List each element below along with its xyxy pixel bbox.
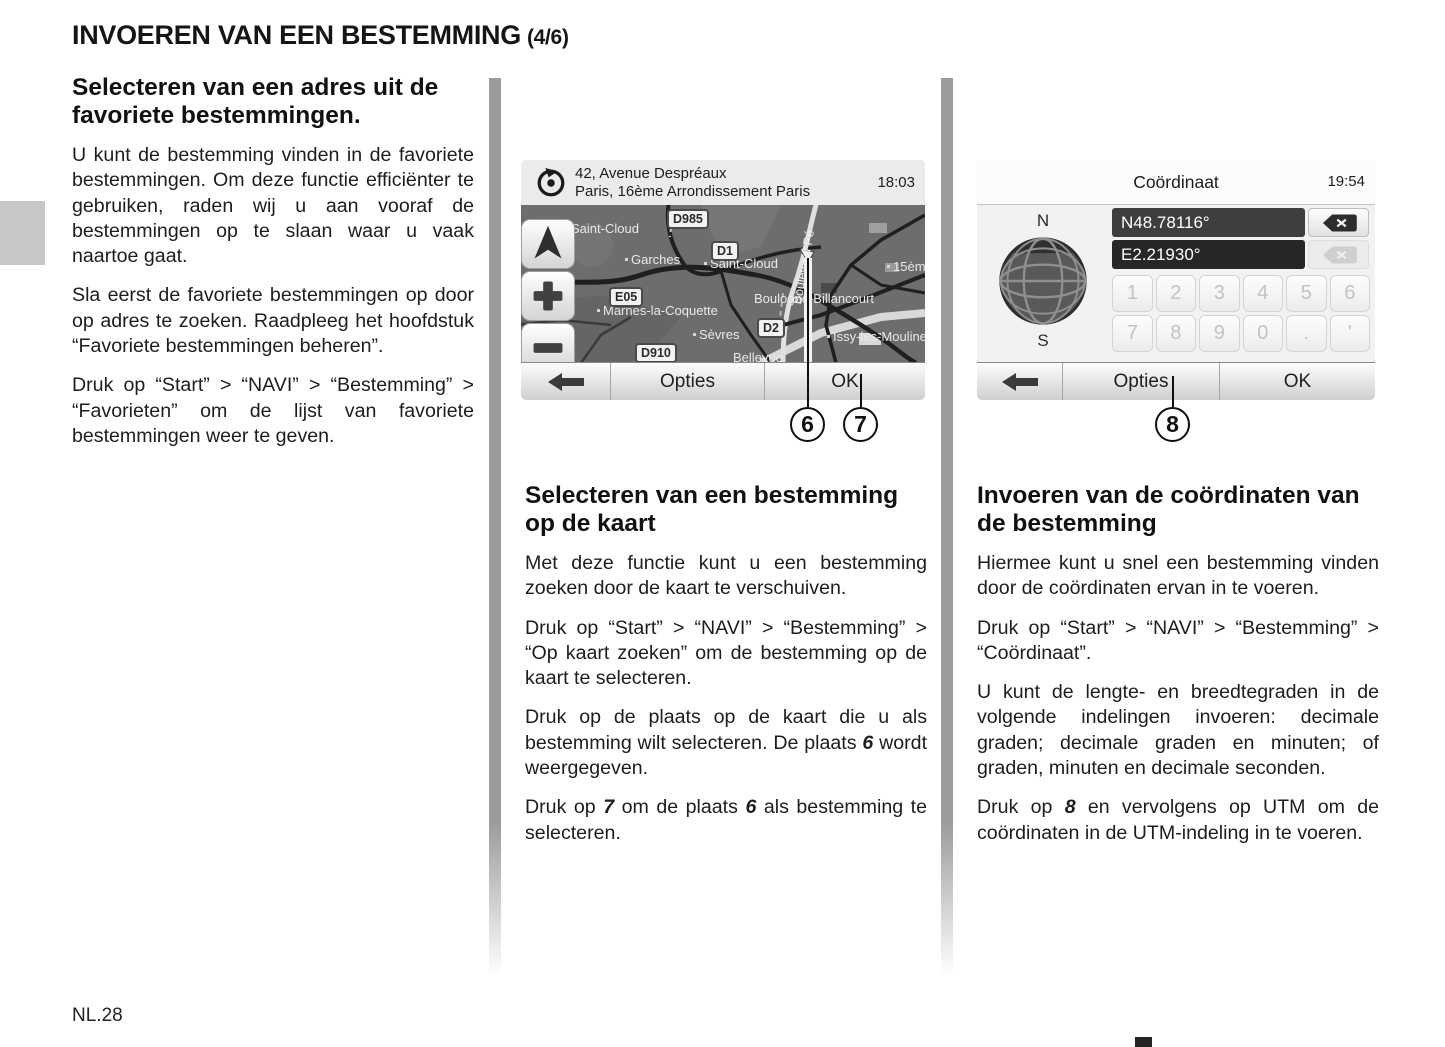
address-line2: Paris, 16ème Arrondissement Paris [575, 183, 877, 201]
key-9[interactable]: 9 [1199, 315, 1240, 352]
column-divider [941, 78, 953, 985]
south-label: S [977, 331, 1109, 351]
longitude-value: E2.21930° [1121, 245, 1201, 264]
key-4[interactable]: 4 [1243, 275, 1284, 312]
paragraph-text: Druk op [525, 796, 603, 818]
left-column-heading: Selecteren van een adres uit de favoriet… [72, 74, 474, 130]
key-3[interactable]: 3 [1199, 275, 1240, 312]
key-0[interactable]: 0 [1243, 315, 1284, 352]
page-title-suffix: (4/6) [527, 26, 569, 49]
paragraph-text: Druk op [977, 796, 1065, 818]
page-corner-mark [1135, 1037, 1152, 1047]
paragraph: Met deze functie kunt u een bestemming z… [525, 551, 927, 602]
map-controls [521, 219, 575, 363]
map-canvas[interactable]: Saint-Cloud Garches Saint-Cloud Marnes-l… [521, 205, 925, 363]
destination-address: 42, Avenue Despréaux Paris, 16ème Arrond… [575, 165, 877, 201]
left-column: Selecteren van een adres uit de favoriet… [72, 74, 474, 463]
road-shield: D2 [757, 318, 785, 338]
paragraph: Druk op “Start” > “NAVI” > “Bestemming” … [977, 616, 1379, 667]
key-7[interactable]: 7 [1112, 315, 1153, 352]
key-2[interactable]: 2 [1156, 275, 1197, 312]
coord-footer-bar: Opties OK [977, 362, 1375, 400]
options-button-label: Opties [660, 371, 715, 393]
options-button-label: Opties [1114, 371, 1169, 393]
back-button[interactable] [977, 363, 1063, 400]
callout-reference: 6 [862, 732, 873, 754]
map-place-label: 15èm [887, 259, 925, 274]
recent-destination-icon [535, 167, 567, 199]
map-compass-button[interactable] [521, 219, 575, 269]
coord-body: N S N48.78116° [977, 205, 1375, 362]
north-label: N [977, 211, 1109, 231]
coordinate-screenshot: Coördinaat 19:54 N S N48.78116° [977, 160, 1375, 400]
road-shield: E05 [609, 287, 643, 307]
callout-6: 6 [790, 407, 825, 442]
map-place-label: Issy-les-Moulinea [827, 329, 925, 344]
callout-reference: 7 [603, 796, 614, 818]
column-divider [489, 78, 501, 985]
paragraph-text: om de plaats [614, 796, 745, 818]
latitude-field[interactable]: N48.78116° [1112, 208, 1305, 237]
paragraph: U kunt de bestemming vinden in de favori… [72, 143, 474, 269]
map-place-label: Boulogne-Billancourt [754, 291, 874, 306]
callout-line-6 [807, 258, 810, 407]
manual-page: INVOEREN VAN EEN BESTEMMING(4/6) Selecte… [0, 0, 1445, 1047]
zoom-out-button[interactable] [521, 323, 575, 363]
paragraph: Druk op 7 om de plaats 6 als bestemming … [525, 795, 927, 846]
page-number: NL.28 [72, 1005, 123, 1027]
page-title-text: INVOEREN VAN EEN BESTEMMING [72, 20, 521, 50]
screen-title: Coördinaat [977, 172, 1375, 193]
arrow-left-icon [998, 370, 1042, 394]
callout-reference: 6 [745, 796, 756, 818]
address-line1: 42, Avenue Despréaux [575, 165, 877, 183]
road-shield: D910 [635, 343, 677, 363]
paragraph: Druk op “Start” > “NAVI” > “Bestemming” … [72, 373, 474, 449]
keypad-row-2: 7 8 9 0 . ' [1112, 315, 1370, 352]
paragraph: U kunt de lengte- en breedtegraden in de… [977, 680, 1379, 781]
nav-map-screenshot: 42, Avenue Despréaux Paris, 16ème Arrond… [521, 160, 925, 400]
map-place-label: Garches [625, 252, 680, 267]
paragraph: Hiermee kunt u snel een bestemming vinde… [977, 551, 1379, 602]
callout-line-7 [860, 374, 863, 407]
road-shield: D985 [667, 209, 709, 229]
options-button[interactable]: Opties [1063, 363, 1220, 400]
backspace-icon [1319, 212, 1359, 234]
callout-line-8 [1172, 376, 1175, 407]
map-place-label: Saint-Cloud [571, 221, 639, 236]
callout-7: 7 [843, 407, 878, 442]
key-apostrophe[interactable]: ' [1330, 315, 1371, 352]
ok-button-label: OK [1284, 371, 1311, 393]
paragraph: Druk op 8 en vervolgens op UTM om de coö… [977, 795, 1379, 846]
middle-column: Selecteren van een bestemming op de kaar… [525, 482, 927, 860]
coord-clock: 19:54 [1327, 173, 1365, 190]
backspace-button[interactable] [1308, 208, 1369, 237]
longitude-field[interactable]: E2.21930° [1112, 240, 1305, 269]
key-dot[interactable]: . [1286, 315, 1327, 352]
backspace-button-disabled [1308, 240, 1369, 269]
map-footer-bar: Opties OK [521, 362, 925, 400]
coord-header-bar: Coördinaat 19:54 [977, 160, 1375, 205]
road-shield: D1 [711, 241, 739, 261]
ok-button-label: OK [831, 371, 858, 393]
callout-8: 8 [1155, 407, 1190, 442]
callout-reference: 8 [1065, 796, 1076, 818]
map-place-label: Sèvres [693, 327, 739, 342]
right-column-heading: Invoeren van de coördinaten van de beste… [977, 482, 1379, 538]
ok-button[interactable]: OK [1220, 363, 1375, 400]
globe-icon [995, 233, 1091, 329]
keypad-row-1: 1 2 3 4 5 6 [1112, 275, 1370, 312]
key-8[interactable]: 8 [1156, 315, 1197, 352]
map-header-bar: 42, Avenue Despréaux Paris, 16ème Arrond… [521, 160, 925, 205]
paragraph: Druk op “Start” > “NAVI” > “Bestemming” … [525, 616, 927, 692]
ok-button[interactable]: OK [765, 363, 925, 400]
page-title: INVOEREN VAN EEN BESTEMMING(4/6) [72, 20, 569, 51]
zoom-in-button[interactable] [521, 271, 575, 321]
paragraph: Druk op de plaats op de kaart die u als … [525, 705, 927, 781]
paragraph: Sla eerst de favoriete bestemmingen op d… [72, 283, 474, 359]
right-column: Invoeren van de coördinaten van de beste… [977, 482, 1379, 860]
arrow-left-icon [544, 370, 588, 394]
key-6[interactable]: 6 [1330, 275, 1371, 312]
map-clock: 18:03 [877, 174, 915, 191]
options-button[interactable]: Opties [611, 363, 765, 400]
back-button[interactable] [521, 363, 611, 400]
key-5[interactable]: 5 [1286, 275, 1327, 312]
middle-column-heading: Selecteren van een bestemming op de kaar… [525, 482, 927, 538]
latitude-value: N48.78116° [1121, 213, 1210, 232]
key-1[interactable]: 1 [1112, 275, 1153, 312]
backspace-icon [1319, 244, 1359, 266]
page-edge-tab [0, 201, 45, 265]
